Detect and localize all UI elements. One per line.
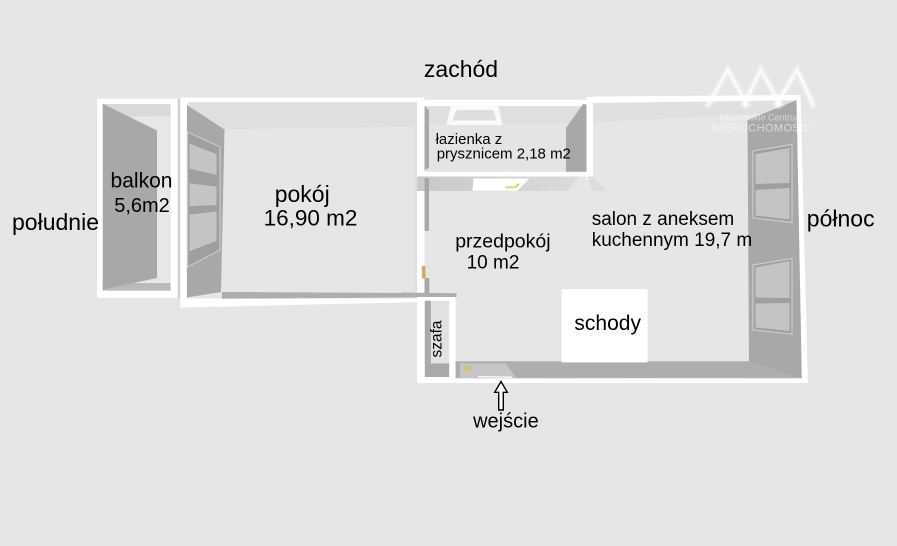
svg-text:przedpokój: przedpokój (455, 230, 550, 252)
svg-text:16,90 m2: 16,90 m2 (264, 205, 358, 230)
svg-text:5,6m2: 5,6m2 (114, 195, 170, 217)
svg-text:zachód: zachód (424, 56, 498, 82)
svg-text:szafa: szafa (429, 320, 446, 357)
svg-text:kuchennym 19,7 m: kuchennym 19,7 m (592, 230, 753, 251)
svg-text:Olsztyńskie Centrum: Olsztyńskie Centrum (719, 113, 802, 123)
svg-text:balkon: balkon (111, 170, 173, 193)
svg-text:prysznicem 2,18 m2: prysznicem 2,18 m2 (437, 146, 571, 163)
svg-text:10 m2: 10 m2 (467, 252, 520, 273)
svg-text:południe: południe (12, 209, 99, 235)
svg-text:wejście: wejście (472, 411, 539, 433)
svg-text:salon z aneksem: salon z aneksem (592, 209, 735, 230)
svg-text:pokój: pokój (275, 181, 330, 207)
svg-text:NIERUCHOMOŚCI: NIERUCHOMOŚCI (712, 122, 812, 135)
svg-text:północ: północ (807, 206, 875, 232)
svg-text:schody: schody (574, 312, 641, 335)
